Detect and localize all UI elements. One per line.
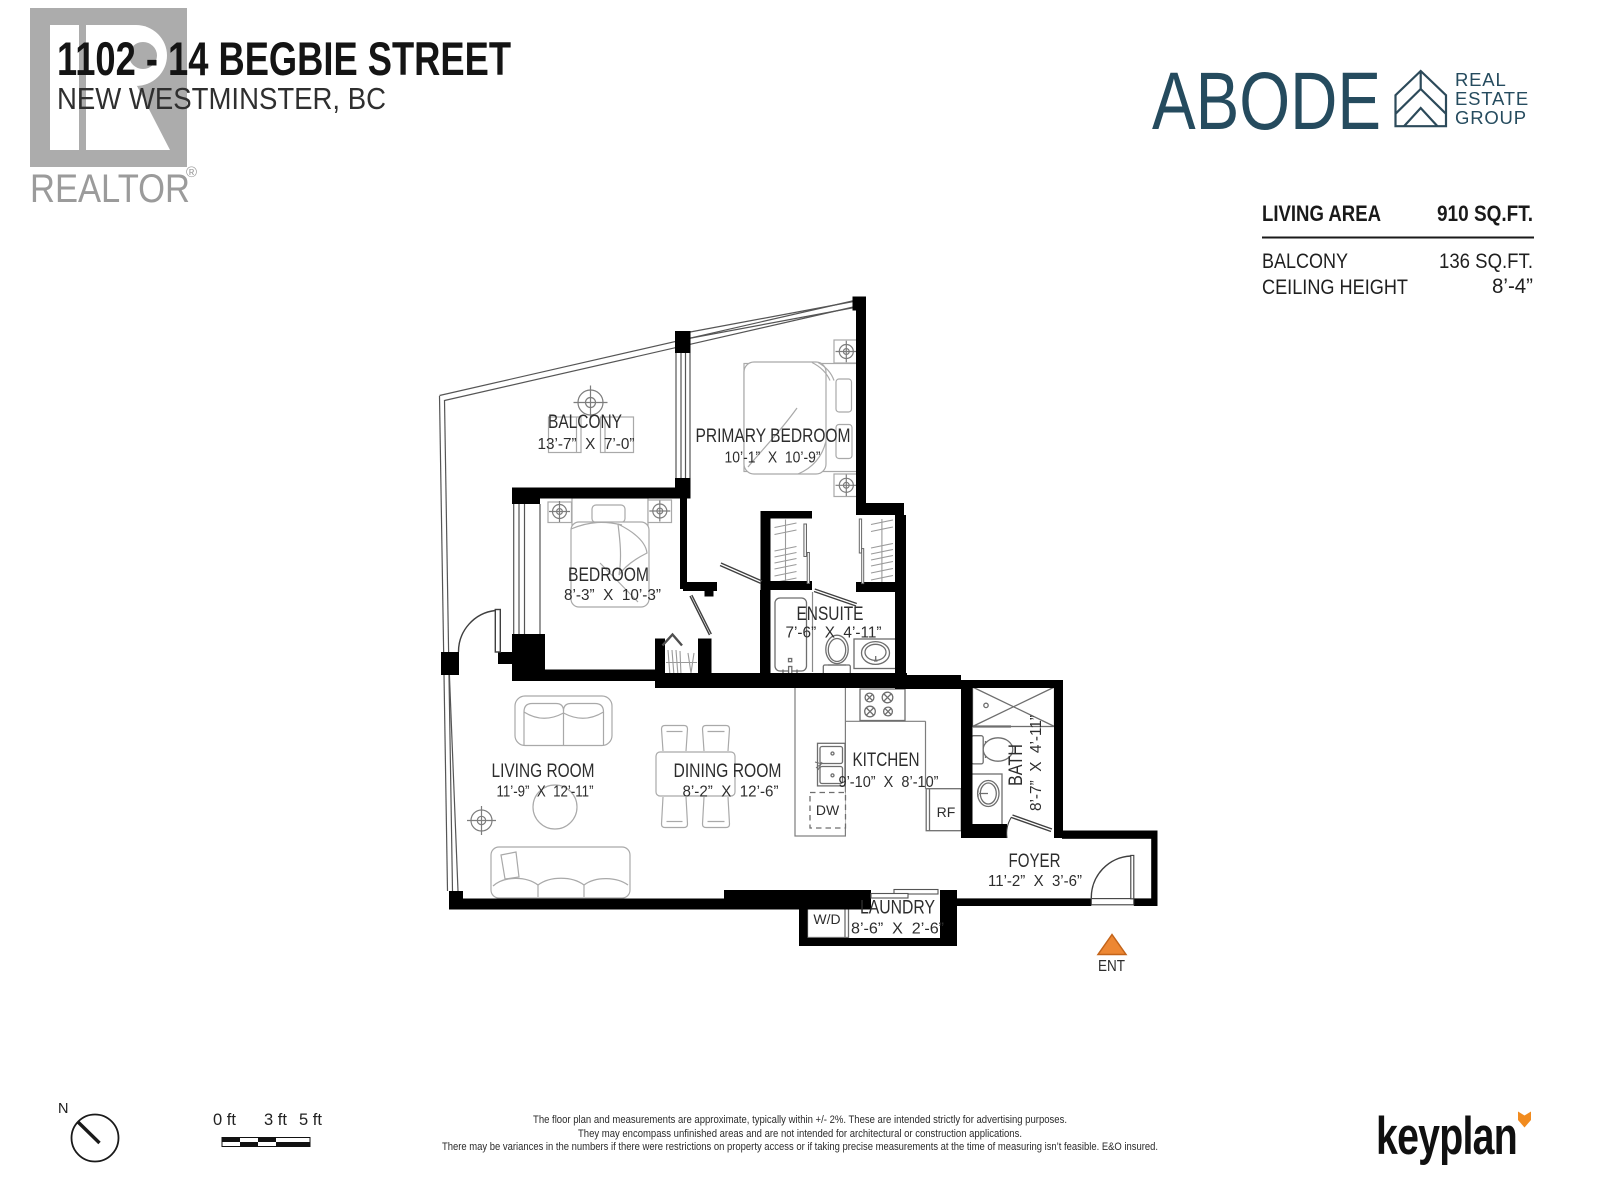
svg-text:ENT: ENT [1098, 958, 1125, 975]
svg-text:BATH: BATH [1006, 744, 1027, 786]
svg-text:ENSUITE: ENSUITE [797, 604, 864, 625]
svg-text:0 ft: 0 ft [213, 1111, 236, 1129]
svg-text:KITCHEN: KITCHEN [853, 750, 920, 771]
svg-text:13’-7” X 7’-0”: 13’-7” X 7’-0” [538, 436, 635, 453]
svg-text:DINING ROOM: DINING ROOM [674, 761, 782, 782]
svg-text:keyplan: keyplan [1376, 1107, 1517, 1166]
svg-text:11’-2” X 3’-6”: 11’-2” X 3’-6” [988, 873, 1082, 890]
svg-text:DW: DW [816, 802, 840, 818]
svg-text:5 ft: 5 ft [299, 1111, 322, 1129]
svg-text:®: ® [186, 164, 197, 181]
svg-text:PRIMARY BEDROOM: PRIMARY BEDROOM [696, 426, 851, 447]
svg-text:9’-10” X 8’-10”: 9’-10” X 8’-10” [839, 774, 939, 791]
svg-text:NEW WESTMINSTER, BC: NEW WESTMINSTER, BC [57, 81, 386, 116]
svg-text:LAUNDRY: LAUNDRY [860, 898, 935, 919]
svg-text:8’-7” X 4’-11”: 8’-7” X 4’-11” [1028, 715, 1045, 811]
svg-text:GROUP: GROUP [1455, 107, 1527, 128]
svg-text:8’-6” X 2’-6”: 8’-6” X 2’-6” [851, 921, 944, 938]
svg-text:ESTATE: ESTATE [1455, 88, 1529, 109]
svg-text:1102 - 14 BEGBIE STREET: 1102 - 14 BEGBIE STREET [57, 32, 511, 85]
svg-text:8’-3” X 10’-3”: 8’-3” X 10’-3” [564, 587, 661, 604]
svg-text:LIVING AREA: LIVING AREA [1262, 201, 1381, 226]
svg-text:They may encompass unfinished: They may encompass unfinished areas and … [578, 1128, 1022, 1140]
svg-text:REAL: REAL [1455, 69, 1507, 90]
svg-text:There may be variances in the: There may be variances in the numbers if… [442, 1141, 1158, 1153]
svg-text:FOYER: FOYER [1009, 851, 1061, 872]
svg-text:BALCONY: BALCONY [1262, 250, 1348, 273]
svg-text:N: N [58, 1101, 68, 1117]
svg-text:136 SQ.FT.: 136 SQ.FT. [1439, 250, 1533, 273]
svg-text:ABODE: ABODE [1152, 56, 1381, 147]
svg-text:10’-1” X 10’-9”: 10’-1” X 10’-9” [725, 450, 821, 467]
svg-text:11’-9” X 12’-11”: 11’-9” X 12’-11” [497, 784, 594, 801]
svg-text:3 ft: 3 ft [264, 1111, 287, 1129]
svg-text:7’-6” X 4’-11”: 7’-6” X 4’-11” [786, 625, 882, 642]
svg-text:LIVING ROOM: LIVING ROOM [492, 761, 595, 782]
svg-text:910 SQ.FT.: 910 SQ.FT. [1437, 201, 1533, 226]
svg-text:8’-4”: 8’-4” [1492, 275, 1533, 298]
svg-text:RF: RF [937, 804, 956, 820]
svg-text:8’-2” X 12’-6”: 8’-2” X 12’-6” [683, 784, 779, 801]
svg-text:CEILING HEIGHT: CEILING HEIGHT [1262, 276, 1408, 299]
svg-text:BALCONY: BALCONY [548, 412, 622, 433]
svg-text:The floor plan and measurement: The floor plan and measurements are appr… [533, 1114, 1067, 1126]
svg-text:BEDROOM: BEDROOM [568, 565, 649, 586]
svg-text:REALTOR: REALTOR [30, 167, 190, 211]
svg-text:W/D: W/D [813, 911, 840, 927]
